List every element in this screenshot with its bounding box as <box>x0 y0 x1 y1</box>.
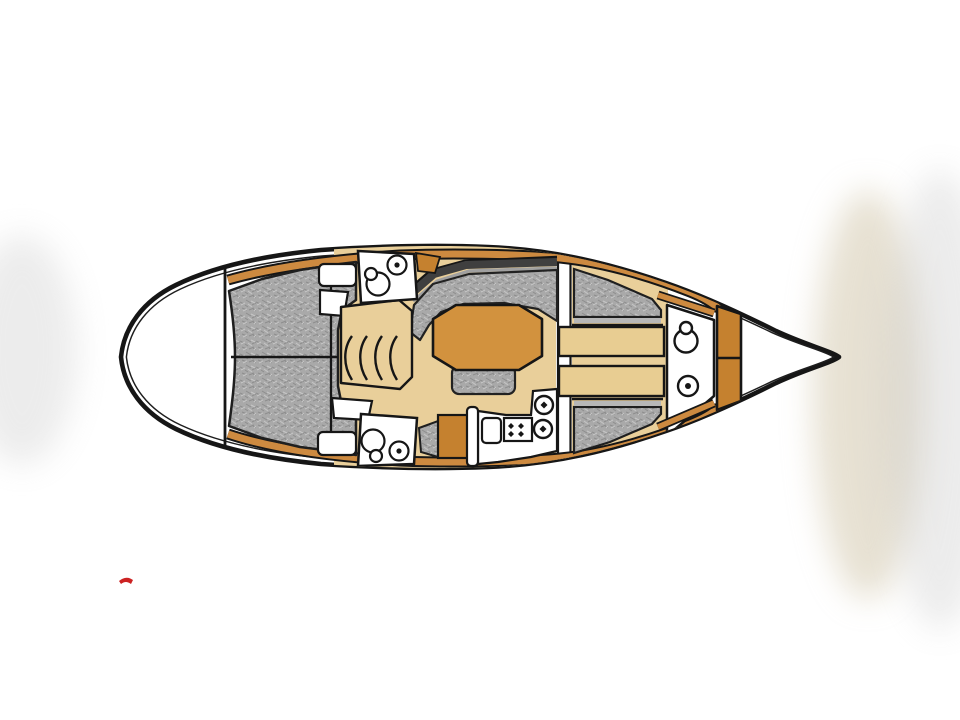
salon-table <box>433 305 542 370</box>
companionway-steps <box>341 300 412 389</box>
locker-top <box>319 264 356 286</box>
sink-drain-icon <box>396 448 401 453</box>
galley-cabinet <box>438 415 468 458</box>
aft-berth-top-strip <box>574 318 661 323</box>
steering-wheel-hub <box>685 383 691 389</box>
toilet-icon <box>362 430 385 453</box>
sink-drain-icon <box>394 262 399 267</box>
coaming-wedge-top <box>416 253 440 273</box>
head-bottom <box>358 414 417 466</box>
haze-left <box>0 235 77 465</box>
galley-divider <box>467 407 478 466</box>
floorplan-svg <box>0 0 960 720</box>
binnacle-compass-icon <box>680 322 692 334</box>
galley-seat-cushion <box>419 421 438 457</box>
aft-berth-bottom-strip <box>574 401 661 406</box>
galley-sink-basin <box>482 418 501 443</box>
red-mark <box>119 578 133 584</box>
cockpit-bench-lower <box>559 366 664 396</box>
boat-floorplan-image <box>0 0 960 720</box>
stove-icon <box>504 418 532 441</box>
toilet-tank-icon <box>370 450 382 462</box>
locker-bottom <box>318 432 356 455</box>
cockpit-bench-upper <box>559 327 664 356</box>
toilet-tank-icon <box>365 268 377 280</box>
